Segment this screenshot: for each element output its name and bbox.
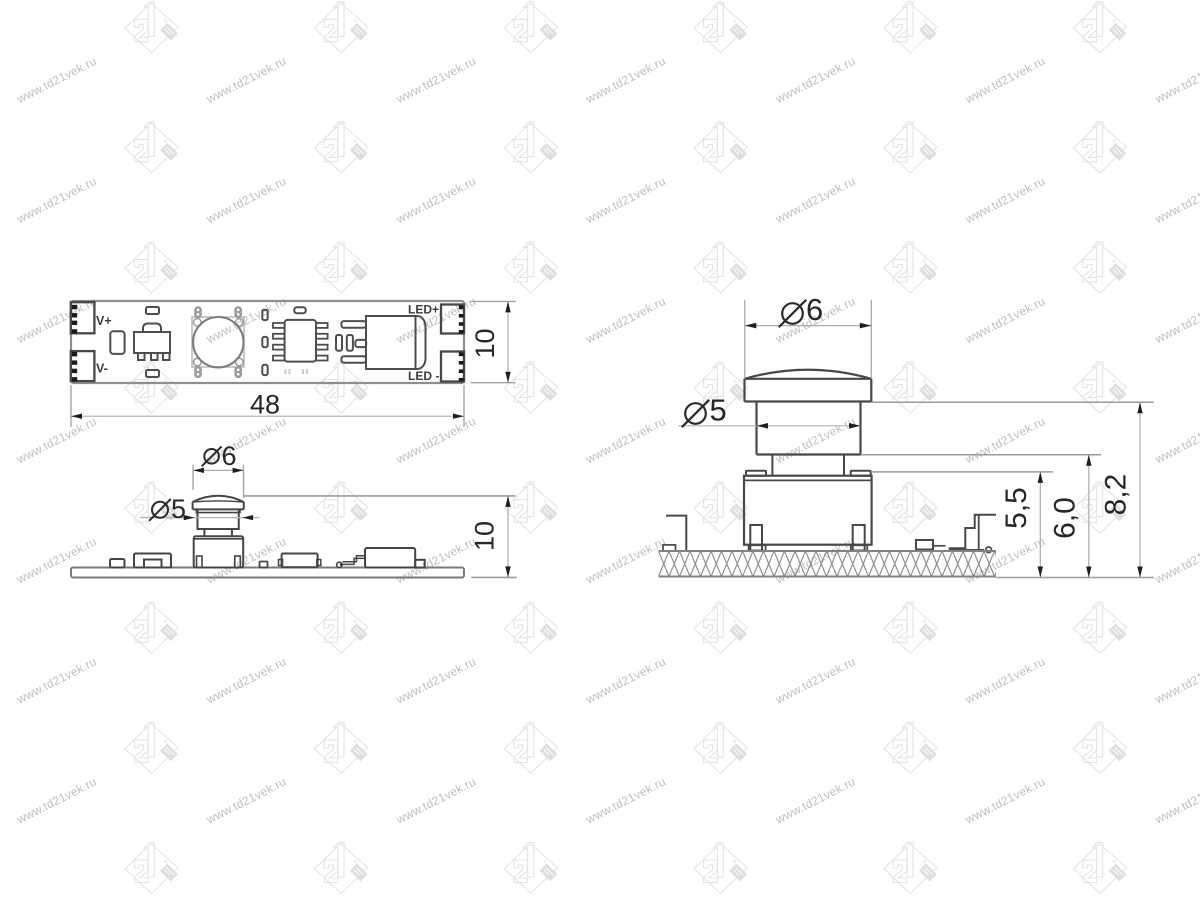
svg-text:8,2: 8,2 <box>1100 474 1133 516</box>
svg-text:5: 5 <box>171 494 186 524</box>
svg-text:5: 5 <box>710 393 727 428</box>
svg-text:6: 6 <box>222 441 237 471</box>
svg-text:V+: V+ <box>96 314 112 328</box>
svg-text:LED -: LED - <box>408 369 439 383</box>
svg-text:6: 6 <box>806 292 823 327</box>
svg-text:10: 10 <box>470 521 500 551</box>
svg-text:10: 10 <box>470 328 500 358</box>
svg-text:5,5: 5,5 <box>1000 487 1033 529</box>
svg-text:LED+: LED+ <box>408 302 439 316</box>
svg-text:6,0: 6,0 <box>1049 497 1082 539</box>
svg-text:V-: V- <box>96 362 108 376</box>
svg-text:48: 48 <box>250 390 280 420</box>
